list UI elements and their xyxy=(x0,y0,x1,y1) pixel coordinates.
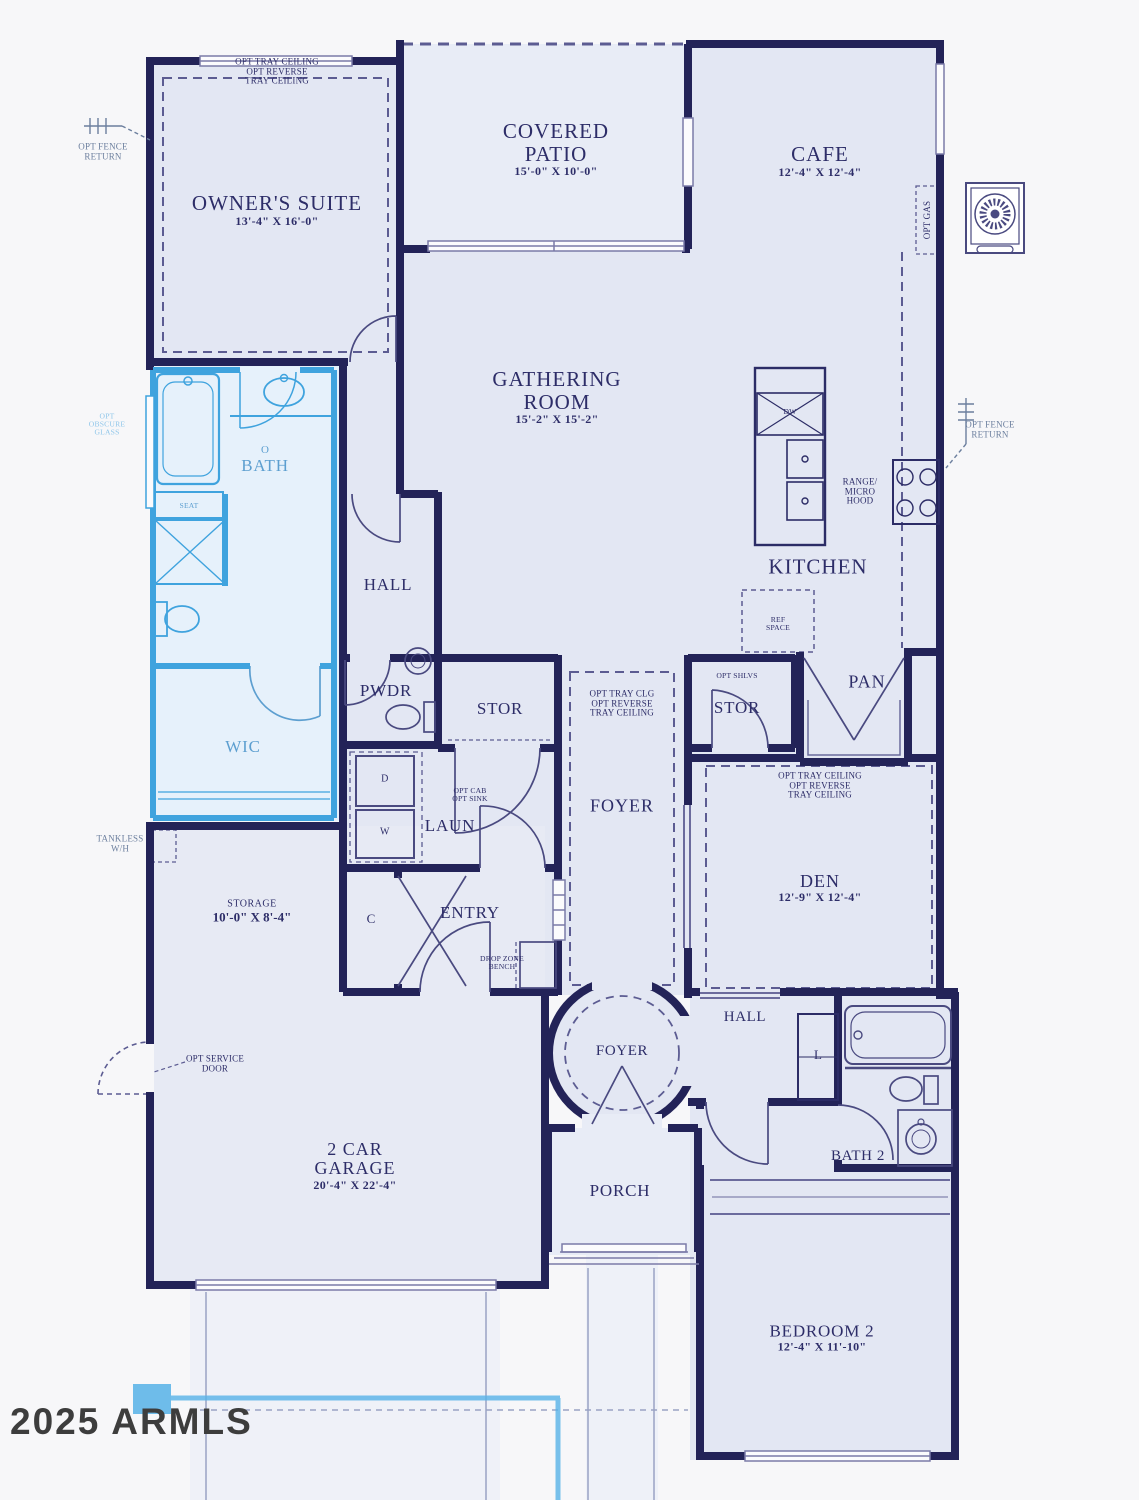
owners-bath-label: O BATH xyxy=(241,445,289,475)
seat-label: SEAT xyxy=(180,502,199,510)
armls-watermark: 2025 ARMLS xyxy=(10,1402,253,1442)
bath2-label: BATH 2 xyxy=(831,1148,885,1164)
cafe-label: CAFE 12'-4" X 12'-4" xyxy=(778,143,861,179)
hall-lower-label: HALL xyxy=(724,1009,766,1025)
bath-window xyxy=(146,396,154,508)
den-ceiling-note: OPT TRAY CEILING OPT REVERSE TRAY CEILIN… xyxy=(778,771,862,800)
stor-hall-label: STOR xyxy=(477,700,523,718)
pantry-label: PAN xyxy=(848,672,885,691)
fence-return-left-label: OPT FENCE RETURN xyxy=(78,142,127,161)
linen-label: L xyxy=(814,1048,822,1062)
den-label: DEN 12'-9" X 12'-4" xyxy=(778,872,861,904)
floor-plan: OPT TRAY CEILING OPT REVERSE TRAY CEILIN… xyxy=(0,0,1139,1500)
floor-plan-drawing xyxy=(0,0,1139,1500)
fence-symbol-left xyxy=(84,118,122,134)
kitchen-label: KITCHEN xyxy=(768,556,867,579)
range-note: RANGE/ MICRO HOOD xyxy=(843,477,878,506)
stor-kitchen-label: STOR xyxy=(714,699,760,717)
hall-upper-label: HALL xyxy=(364,576,413,594)
gathering-room-label: GATHERING ROOM 15'-2" X 15'-2" xyxy=(492,368,621,426)
garage-label: 2 CAR GARAGE 20'-4" X 22'-4" xyxy=(313,1140,396,1192)
ref-space-note: REF SPACE xyxy=(766,616,790,632)
pwdr-label: PWDR xyxy=(360,682,412,700)
closet-c-label: C xyxy=(367,912,376,926)
foyer-ceiling-note: OPT TRAY CLG OPT REVERSE TRAY CEILING xyxy=(590,689,655,718)
tankless-note: TANKLESS W/H xyxy=(97,834,144,853)
covered-patio-label: COVERED PATIO 15'-0" X 10'-0" xyxy=(503,120,609,178)
dryer-label: D xyxy=(381,775,389,786)
opt-shelves-note: OPT SHLVS xyxy=(716,672,757,680)
foyer-rotunda-label: FOYER xyxy=(596,1043,648,1059)
entry-label: ENTRY xyxy=(440,904,500,922)
washer-label: W xyxy=(380,828,390,839)
obscure-glass-note: OPT OBSCURE GLASS xyxy=(89,413,125,438)
laundry-label: LAUN xyxy=(425,817,475,835)
ceiling-fan-icon xyxy=(966,183,1024,253)
bedroom2-label: BEDROOM 2 12'-4" X 11'-10" xyxy=(770,1322,875,1353)
owner-ceiling-note: OPT TRAY CEILING OPT REVERSE TRAY CEILIN… xyxy=(235,57,319,86)
wic-label: WIC xyxy=(225,738,260,756)
owners-suite-label: OWNER'S SUITE 13'-4" X 16'-0" xyxy=(192,192,362,228)
porch-label: PORCH xyxy=(590,1182,651,1200)
fence-return-right-label: OPT FENCE RETURN xyxy=(965,420,1014,439)
opt-gas-label: OPT GAS xyxy=(923,201,933,240)
service-door-note: OPT SERVICE DOOR xyxy=(186,1054,244,1073)
drop-zone-note: DROP ZONE BENCH xyxy=(480,955,524,971)
foyer-gallery-label: FOYER xyxy=(590,796,654,815)
storage-label: STORAGE 10'-0" X 8'-4" xyxy=(213,900,292,925)
laundry-note: OPT CAB OPT SINK xyxy=(452,787,487,803)
dishwasher-label: DW xyxy=(783,408,796,416)
